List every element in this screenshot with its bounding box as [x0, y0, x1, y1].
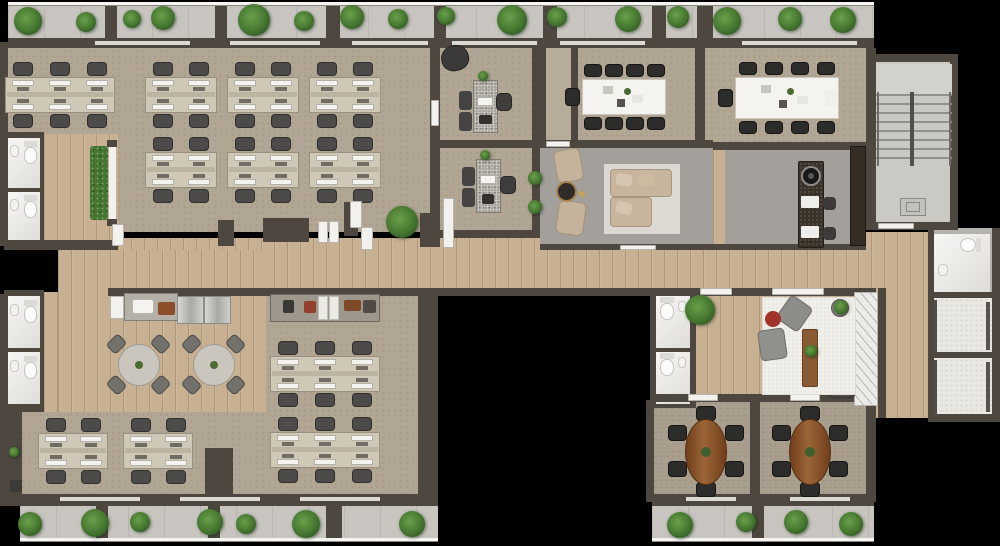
office-chair [46, 470, 66, 484]
monitor [12, 104, 34, 110]
plant [667, 512, 693, 538]
stair-rail-right [949, 92, 951, 166]
wall-wc-south [4, 240, 118, 250]
toilet [24, 147, 37, 164]
office-chair [278, 393, 298, 407]
desk-cluster-b3-divider [311, 167, 379, 172]
coffee-machine-dot [808, 173, 814, 179]
office-chair [271, 62, 291, 76]
plant [615, 6, 641, 32]
balcony-divider [215, 6, 227, 38]
plant [399, 511, 425, 537]
office-chair [271, 137, 291, 151]
office-chair [352, 417, 372, 431]
office-chair [235, 62, 255, 76]
plant [386, 206, 418, 238]
laptop [319, 378, 331, 382]
monitor [80, 436, 102, 442]
laptop [357, 174, 369, 178]
laptop [319, 442, 331, 446]
red-side-table [765, 311, 781, 327]
monitor [277, 459, 299, 465]
monitor-b [480, 175, 496, 184]
laptop [357, 87, 369, 91]
laptop [356, 366, 368, 370]
conference-chair [791, 121, 809, 134]
lounge-armchair-2 [555, 199, 587, 237]
sink [10, 304, 19, 316]
door-mat [878, 223, 914, 229]
table-decor [603, 86, 613, 94]
wall-column [218, 220, 234, 246]
stair-landing [876, 64, 952, 94]
plant [340, 5, 364, 29]
monitor [165, 460, 187, 466]
table-decor [779, 100, 787, 108]
office-chair [153, 62, 173, 76]
stair-rail-center [910, 92, 914, 166]
wall-elev-east [992, 228, 1000, 420]
planter-cap [107, 140, 117, 147]
sideboard-door-2 [329, 296, 339, 320]
desk-cluster-a2-divider [147, 92, 215, 97]
coffee-table-round [556, 181, 577, 202]
office-chair [13, 114, 33, 128]
toilet [24, 201, 37, 218]
bar-stool-2 [823, 227, 836, 240]
door-mat [700, 288, 732, 295]
plant [238, 4, 270, 36]
monitor [270, 80, 292, 86]
desk-cluster-b1-divider [147, 167, 215, 172]
conference-chair [647, 117, 665, 130]
plant [478, 71, 488, 81]
laptop [54, 99, 66, 103]
meeting-chair [772, 461, 791, 477]
conference-chair [605, 64, 623, 77]
laptop [85, 443, 97, 447]
laptop [193, 99, 205, 103]
table-plant [805, 447, 815, 457]
monitor [351, 459, 373, 465]
office-chair [166, 470, 186, 484]
office-chair [278, 341, 298, 355]
monitor [234, 155, 256, 161]
conference-chair [605, 117, 623, 130]
table-decor [797, 96, 808, 104]
fridge-1 [177, 296, 204, 324]
sideboard-phone [283, 300, 294, 313]
console-table [802, 329, 818, 387]
door-mat [329, 221, 339, 243]
toilet [24, 306, 37, 323]
plant [151, 6, 175, 30]
stair-treads [876, 94, 952, 166]
elevator-door-2 [934, 360, 937, 414]
plant [14, 7, 42, 35]
toilet [24, 362, 37, 379]
elevator-1 [934, 298, 992, 352]
laptop [17, 87, 29, 91]
wall-meeting-east [866, 400, 876, 502]
monitor [165, 436, 187, 442]
wall-tl-east [430, 48, 440, 230]
monitor [152, 179, 174, 185]
floor-wood-strip-wc [44, 292, 58, 412]
laptop [321, 174, 333, 178]
laptop [91, 99, 103, 103]
stair-rail-left [877, 92, 879, 166]
wall-elev-south [928, 414, 1000, 422]
floor-wood-strip-bar [713, 150, 725, 248]
laptop [282, 378, 294, 382]
plant [784, 510, 808, 534]
planter-hedge [90, 146, 108, 220]
office-chair [131, 418, 151, 432]
guest-chair-b2 [462, 188, 475, 207]
monitor [316, 80, 338, 86]
office-chair [317, 114, 337, 128]
plant [834, 300, 848, 314]
conference-chair [626, 64, 644, 77]
window-sill [180, 497, 260, 501]
window-sill [352, 41, 428, 45]
laptop [157, 99, 169, 103]
monitor [152, 80, 174, 86]
kitchen-sink [132, 299, 154, 314]
elevator-2 [934, 358, 992, 414]
conference-chair [739, 62, 757, 75]
floorplan-canvas [0, 0, 1000, 546]
plant [236, 514, 256, 534]
monitor [314, 359, 336, 365]
window-sill [300, 497, 380, 501]
sideboard-door-1 [318, 296, 328, 320]
bar-laptop-2 [801, 226, 819, 238]
monitor [152, 104, 174, 110]
laptop [193, 162, 205, 166]
laptop [321, 162, 333, 166]
monitor [130, 436, 152, 442]
door-mat [772, 288, 824, 295]
monitor [314, 435, 336, 441]
laptop [357, 99, 369, 103]
plant [9, 447, 19, 457]
laptop [275, 162, 287, 166]
window-sill [686, 497, 736, 501]
laptop [157, 162, 169, 166]
sideboard-tray [344, 300, 361, 311]
door-mat [318, 221, 328, 243]
office-chair [166, 418, 186, 432]
laptop [54, 87, 66, 91]
office-chair [317, 62, 337, 76]
monitor [270, 104, 292, 110]
monitor [188, 179, 210, 185]
window-sill [95, 41, 190, 45]
laptop [193, 87, 205, 91]
window-sill [742, 41, 857, 45]
desk-cluster-d1-divider [40, 448, 106, 453]
laptop [239, 99, 251, 103]
meeting-chair [829, 425, 848, 441]
office-chair [271, 189, 291, 203]
laptop [275, 99, 287, 103]
laptop [157, 87, 169, 91]
office-floorplan [0, 0, 1000, 546]
fridge-2 [204, 296, 231, 324]
table-plant [787, 88, 794, 95]
office-chair [153, 189, 173, 203]
office-chair [315, 417, 335, 431]
sofa-pillow-1 [615, 173, 633, 187]
monitor [86, 80, 108, 86]
office-chair [235, 189, 255, 203]
plant [736, 512, 756, 532]
lounge-armchair-1 [552, 147, 584, 184]
balcony-railing-bottom-right [652, 538, 874, 542]
monitor [80, 460, 102, 466]
conference-chair [584, 117, 602, 130]
office-chair [278, 417, 298, 431]
door-mat [112, 224, 124, 246]
monitor [277, 383, 299, 389]
plant [292, 510, 320, 538]
door-mat [620, 245, 656, 250]
plant [197, 509, 223, 535]
office-chair [13, 62, 33, 76]
table-plant [624, 88, 631, 95]
balcony-divider [652, 6, 666, 40]
sofa-pillow-2 [637, 173, 654, 187]
laptop [275, 174, 287, 178]
office-chair [81, 418, 101, 432]
desk-cluster-b2-divider [229, 167, 297, 172]
monitor-a [477, 97, 493, 106]
laptop [239, 87, 251, 91]
balcony-divider [105, 6, 117, 38]
office-chair [315, 469, 335, 483]
office-chair [352, 469, 372, 483]
wall-column [263, 218, 309, 242]
meeting-chair [829, 461, 848, 477]
plant [839, 512, 863, 536]
kitchen-stove [158, 302, 175, 315]
table-plant [701, 447, 711, 457]
office-chair [189, 137, 209, 151]
monitor [277, 435, 299, 441]
meeting-chair [772, 425, 791, 441]
office-chair [278, 469, 298, 483]
monitor [314, 459, 336, 465]
laptop-a [479, 115, 492, 124]
laptop [357, 162, 369, 166]
wall-stair-west [866, 48, 876, 230]
door-mat [790, 394, 820, 401]
monitor [352, 104, 374, 110]
conference-chair [718, 89, 733, 107]
table-decor [617, 99, 625, 107]
laptop [282, 454, 294, 458]
wall-column [420, 213, 440, 247]
plant [528, 200, 542, 214]
monitor [270, 155, 292, 161]
office-chair [317, 189, 337, 203]
toilet [660, 303, 674, 320]
plant [805, 345, 817, 357]
door-mat [688, 394, 718, 401]
table-plant [210, 361, 218, 369]
office-chair [353, 137, 373, 151]
door-mat [443, 198, 454, 248]
wall-meeting-west [646, 400, 654, 502]
plant [528, 171, 542, 185]
laptop [282, 366, 294, 370]
conference-chair [791, 62, 809, 75]
toilet [660, 359, 674, 376]
plant [480, 150, 490, 160]
laptop [50, 443, 62, 447]
exec-chair-a [496, 93, 512, 111]
laptop [170, 455, 182, 459]
laptop-b [482, 194, 494, 204]
office-chair [50, 114, 70, 128]
monitor [352, 155, 374, 161]
monitor [316, 179, 338, 185]
plant [667, 6, 689, 28]
table-decor [632, 95, 643, 103]
conference-chair [739, 121, 757, 134]
window-sill [60, 497, 140, 501]
window-sill [560, 41, 645, 45]
door-mat [361, 227, 373, 250]
office-chair [189, 114, 209, 128]
monitor [270, 179, 292, 185]
balcony-divider [326, 506, 342, 538]
conference-chair [817, 121, 835, 134]
door-mat [110, 296, 124, 319]
office-chair [153, 137, 173, 151]
exec-desk-a [473, 80, 498, 133]
gold-decor [579, 191, 585, 197]
monitor [49, 80, 71, 86]
laptop [157, 174, 169, 178]
plant [18, 512, 42, 536]
wall-stair-north [866, 54, 958, 62]
plant [76, 12, 96, 32]
office-chair [235, 114, 255, 128]
laptop [356, 442, 368, 446]
sink [938, 264, 948, 276]
desk-cluster-c1-divider [272, 371, 378, 376]
meeting-chair [725, 461, 744, 477]
exec-desk-b [476, 159, 501, 213]
office-chair [189, 62, 209, 76]
conference-chair [765, 121, 783, 134]
bar-laptop-1 [801, 196, 819, 208]
sink [10, 360, 19, 372]
plant [713, 7, 741, 35]
laptop [135, 443, 147, 447]
laptop [356, 378, 368, 382]
paper-pad [825, 90, 837, 106]
office-chair [317, 137, 337, 151]
door-mat [350, 201, 362, 228]
lounge-chair-gray-2 [757, 327, 788, 361]
wall-meeting-divider [750, 402, 760, 502]
conference-chair [647, 64, 665, 77]
table-plant [135, 361, 143, 369]
office-chair [271, 114, 291, 128]
window-sill [790, 497, 850, 501]
plant [130, 512, 150, 532]
wall-office-mid [438, 140, 534, 148]
wall-column [205, 448, 233, 496]
wall-conf1-west [538, 48, 546, 146]
laptop [239, 162, 251, 166]
laptop [321, 87, 333, 91]
monitor [351, 359, 373, 365]
monitor [316, 104, 338, 110]
monitor [45, 436, 67, 442]
desk-cluster-a3-divider [229, 92, 297, 97]
meeting-chair [725, 425, 744, 441]
laptop [275, 87, 287, 91]
office-chair [352, 341, 372, 355]
office-chair [153, 114, 173, 128]
wall-lightwell-north [437, 288, 657, 296]
balcony-railing-bottom-left [20, 538, 438, 542]
laptop [50, 455, 62, 459]
conference-table-1 [582, 79, 666, 115]
monitor [352, 80, 374, 86]
wall-lightwell-west [418, 294, 438, 502]
monitor [130, 460, 152, 466]
monitor [188, 104, 210, 110]
wall-lounge-right-east [878, 288, 886, 418]
laptop [282, 442, 294, 446]
plant [294, 11, 314, 31]
desk-cluster-a4-divider [311, 92, 379, 97]
plant [547, 7, 567, 27]
guest-chair-a2 [459, 112, 472, 131]
office-chair [87, 62, 107, 76]
monitor [188, 155, 210, 161]
plant [685, 295, 715, 325]
table-decor [761, 85, 771, 93]
toilet-tank [976, 238, 981, 252]
conference-table-2 [735, 77, 839, 119]
bar-cabinet [850, 146, 866, 246]
sink [10, 145, 19, 157]
office-chair [50, 62, 70, 76]
sink [678, 357, 686, 368]
laptop [319, 454, 331, 458]
conference-chair [765, 62, 783, 75]
laptop [239, 174, 251, 178]
toilet [960, 238, 976, 252]
office-chair [131, 470, 151, 484]
guest-chair-b1 [462, 167, 475, 186]
conference-chair [584, 64, 602, 77]
plant [388, 9, 408, 29]
laptop [91, 87, 103, 91]
monitor [314, 383, 336, 389]
monitor [86, 104, 108, 110]
bar-stool-1 [823, 197, 836, 210]
laptop [170, 443, 182, 447]
door-mat [431, 100, 439, 126]
